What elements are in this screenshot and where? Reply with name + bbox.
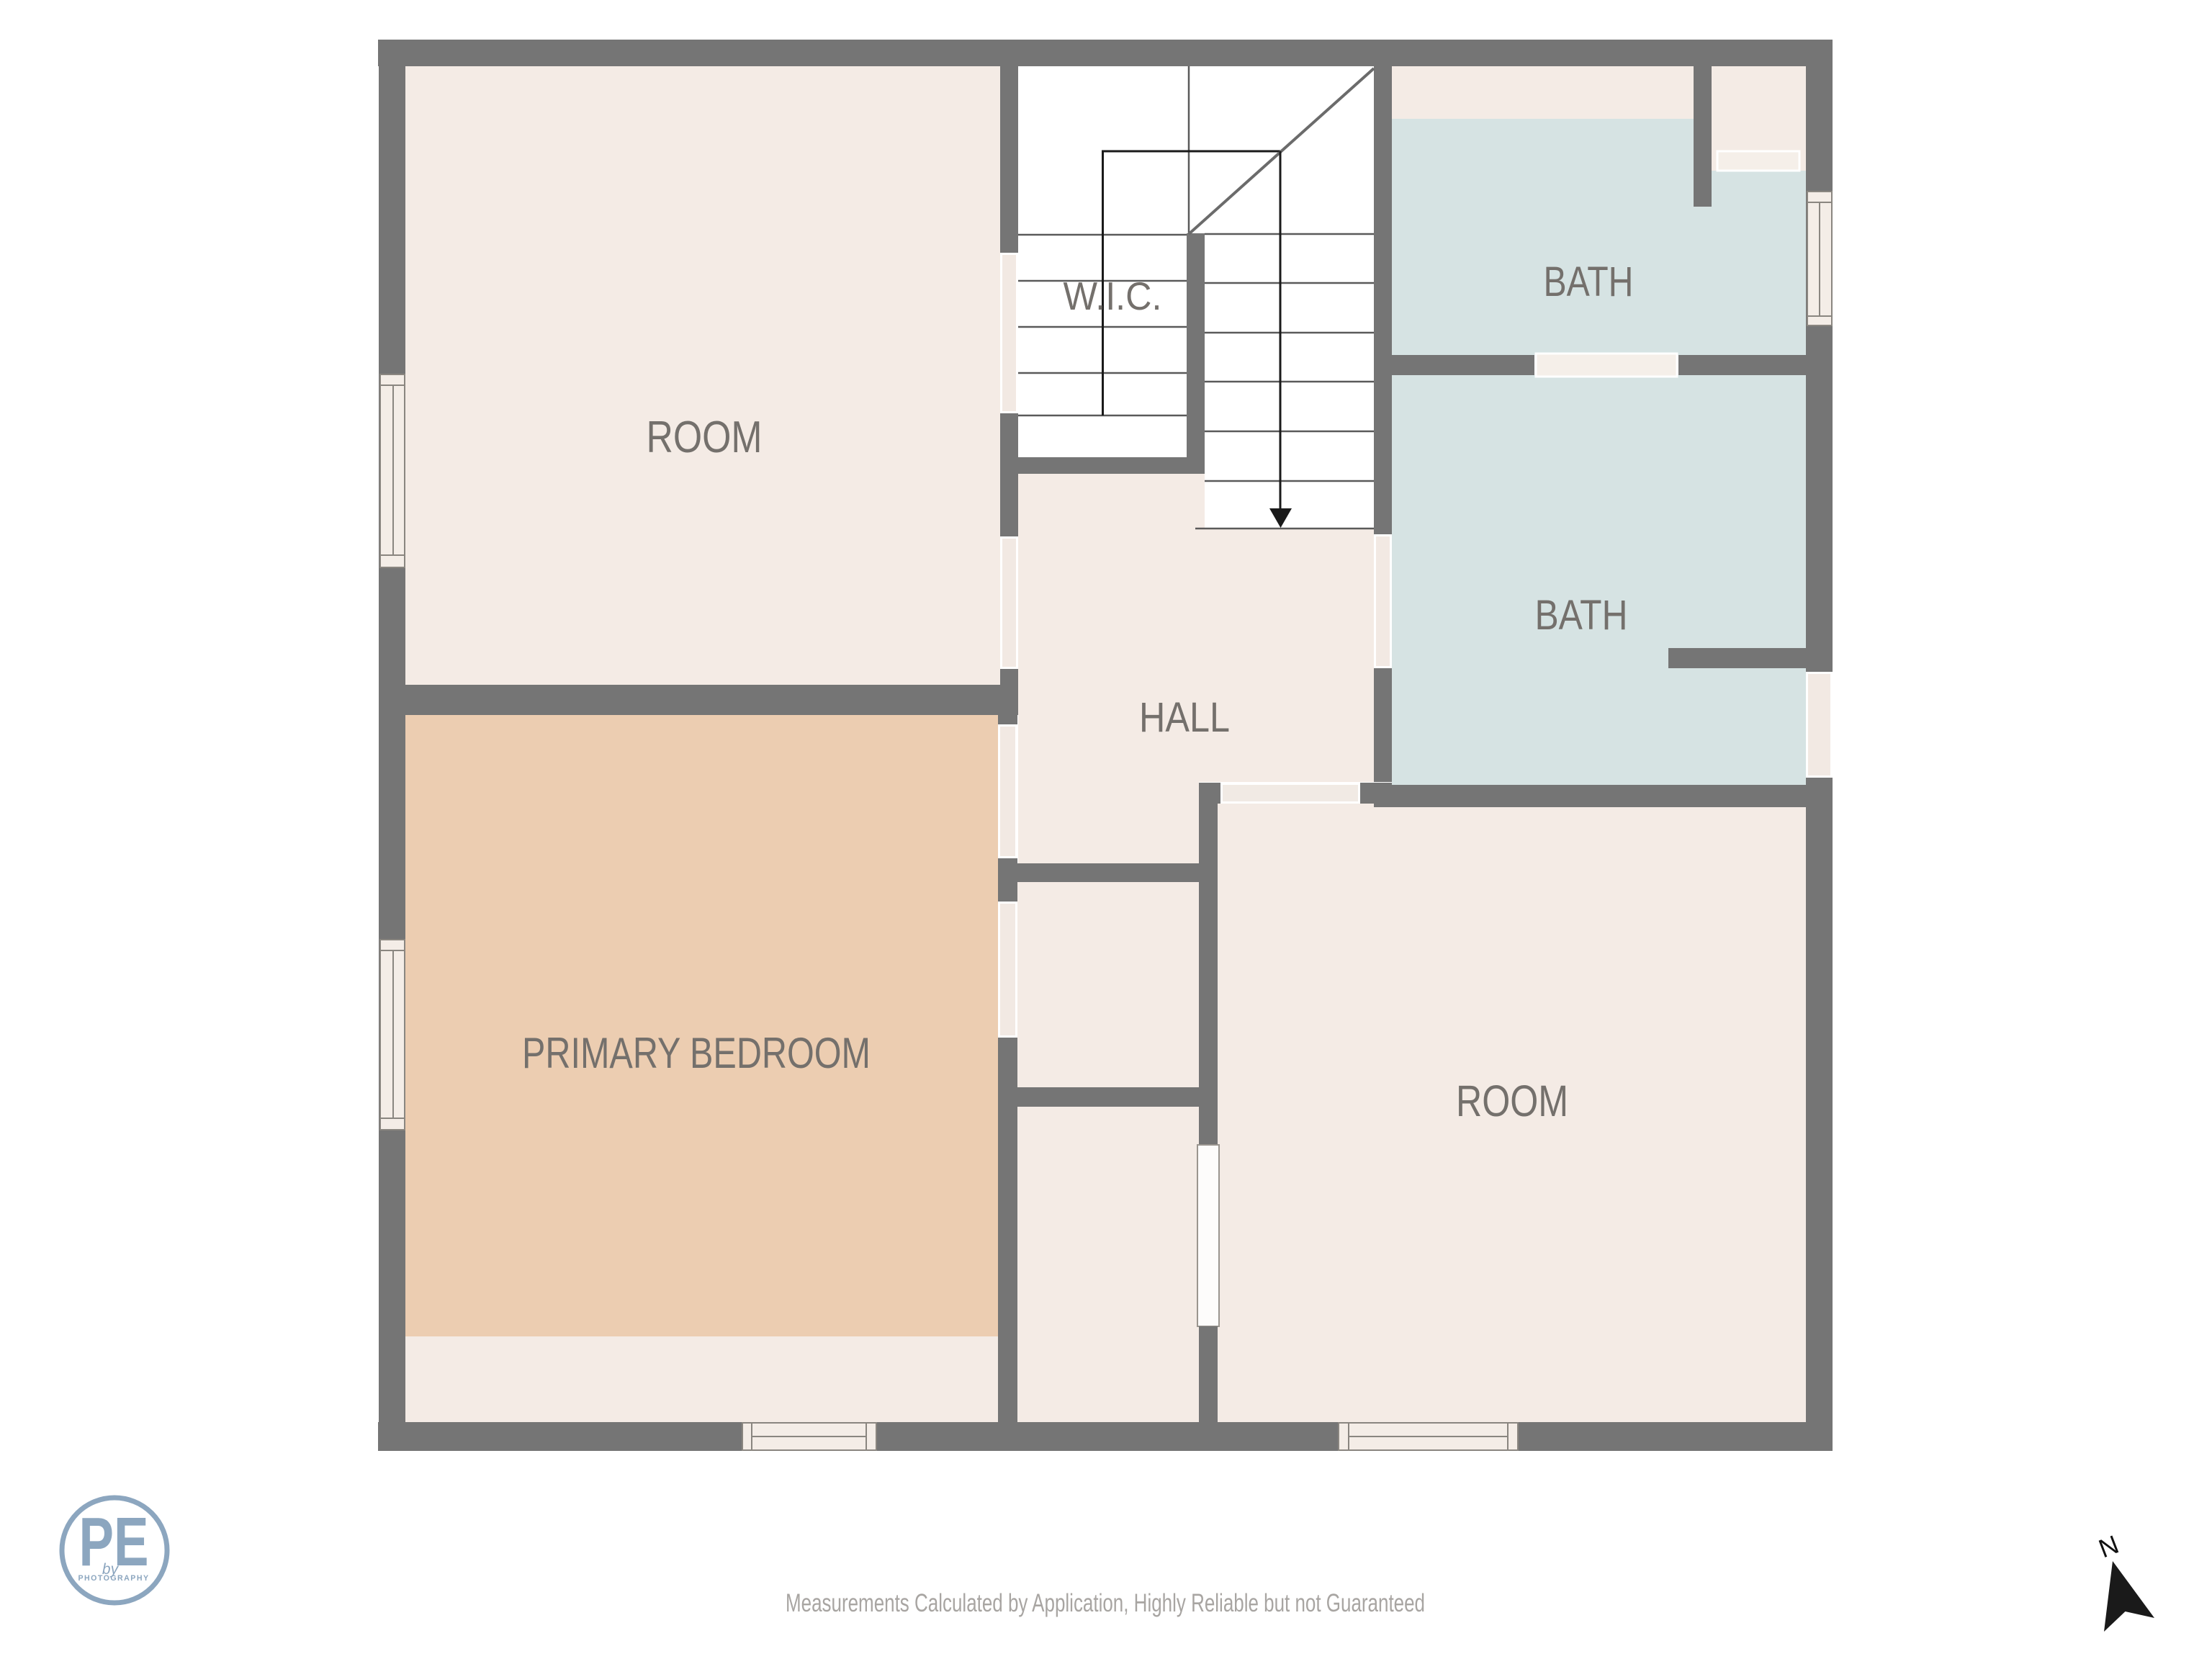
svg-text:ROOM: ROOM: [1456, 1076, 1568, 1125]
svg-text:PRIMARY BEDROOM: PRIMARY BEDROOM: [522, 1029, 871, 1077]
svg-text:BATH: BATH: [1535, 592, 1628, 639]
svg-text:W.I.C.: W.I.C.: [1064, 274, 1162, 318]
svg-text:BATH: BATH: [1544, 258, 1634, 305]
svg-text:Measurements Calculated by App: Measurements Calculated by Application, …: [786, 1589, 1425, 1617]
svg-text:ROOM: ROOM: [647, 413, 763, 462]
svg-text:PHOTOGRAPHY: PHOTOGRAPHY: [78, 1574, 150, 1583]
svg-text:HALL: HALL: [1139, 694, 1230, 741]
